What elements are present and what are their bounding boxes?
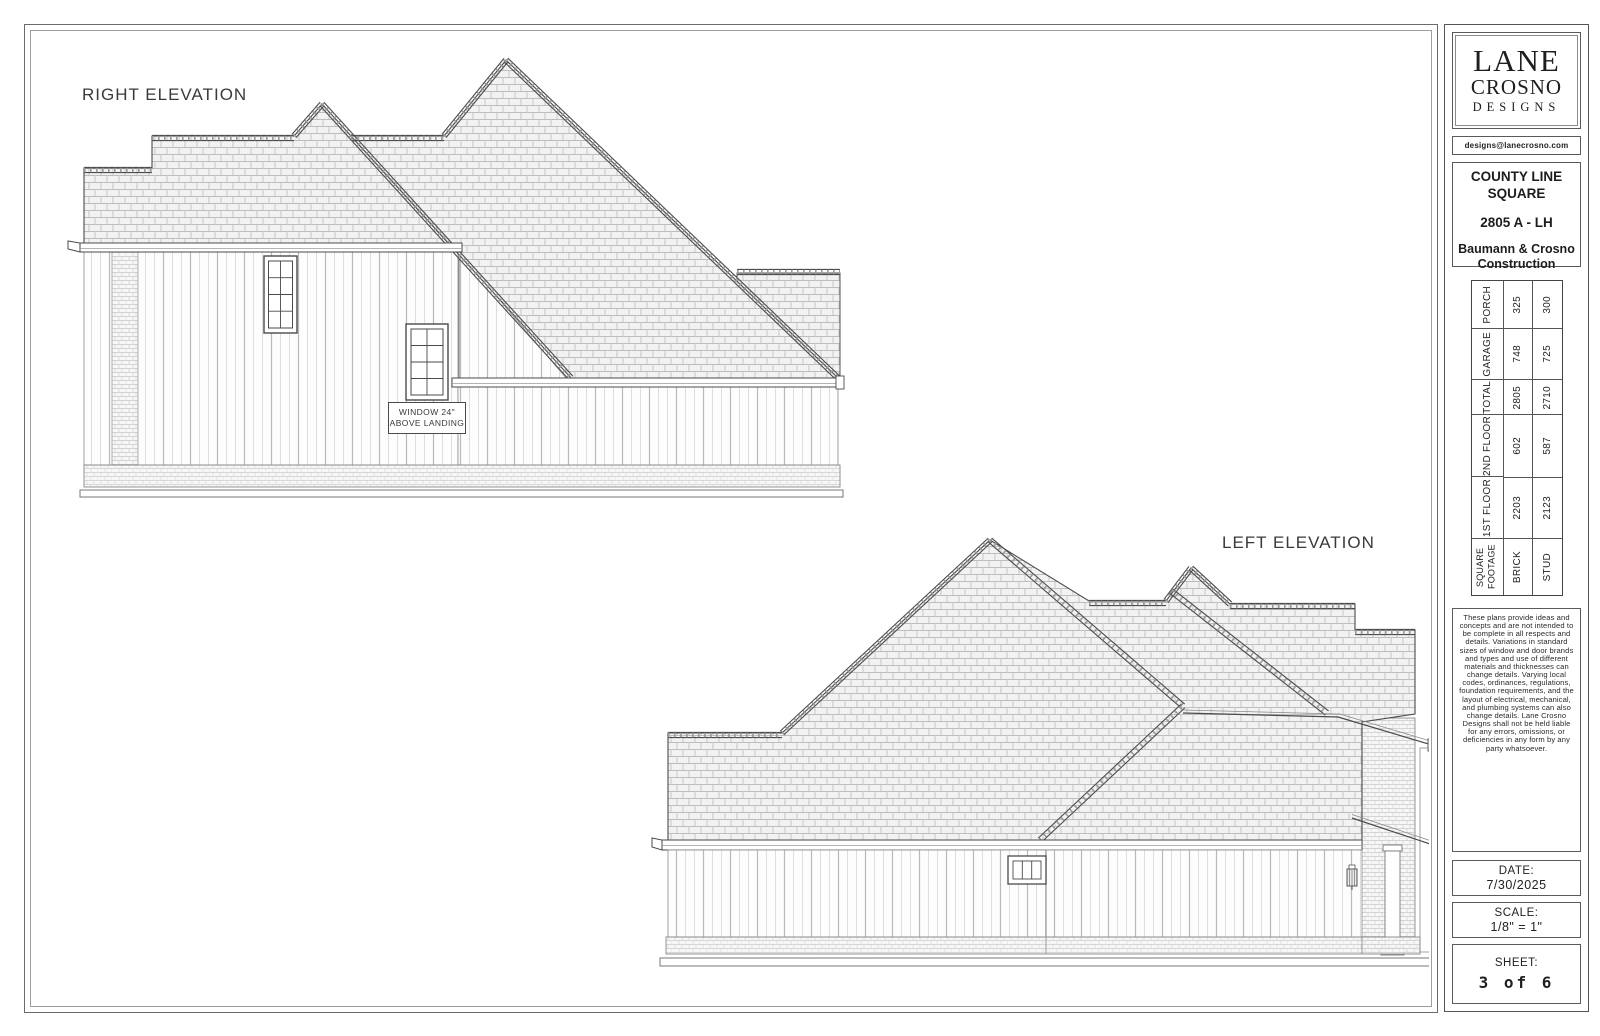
date-value: 7/30/2025 xyxy=(1486,878,1546,892)
left-elevation xyxy=(652,538,1429,966)
table-cell: 2805 xyxy=(1512,386,1523,409)
table-column-brick: 325 748 2805 602 2203 BRICK xyxy=(1504,281,1533,595)
logo-line3: DESIGNS xyxy=(1473,100,1561,115)
row-label: PORCH xyxy=(1482,286,1493,324)
project-name: COUNTY LINE SQUARE xyxy=(1453,169,1580,203)
table-cell: 2203 xyxy=(1512,496,1523,519)
table-cell: 725 xyxy=(1542,345,1553,363)
wall-lantern xyxy=(1347,865,1357,890)
foundation-band xyxy=(666,937,1420,954)
table-cell: 587 xyxy=(1542,437,1553,455)
lane-crosno-logo: LANE CROSNO DESIGNS xyxy=(1455,35,1578,126)
window-small xyxy=(1008,856,1046,884)
column-header-brick: BRICK xyxy=(1512,551,1523,583)
table-column-stud: 300 725 2710 587 2123 STUD xyxy=(1533,281,1562,595)
square-footage-table: PORCH GARAGE TOTAL 2ND FLOOR 1ST FLOOR S… xyxy=(1471,280,1563,596)
row-label: 1ST FLOOR xyxy=(1482,479,1493,537)
scale-value: 1/8" = 1" xyxy=(1491,920,1543,934)
table-header: SQUARE FOOTAGE xyxy=(1475,539,1498,595)
window-above-landing xyxy=(406,324,448,400)
row-label: GARAGE xyxy=(1482,332,1493,377)
window-upper-left xyxy=(264,256,297,333)
table-column-labels: PORCH GARAGE TOTAL 2ND FLOOR 1ST FLOOR S… xyxy=(1472,281,1504,595)
brick-pilaster xyxy=(112,252,138,465)
title-block-sidebar: LANE CROSNO DESIGNS designs@lanecrosno.c… xyxy=(1444,24,1589,1012)
row-label: TOTAL xyxy=(1482,381,1493,414)
table-cell: 748 xyxy=(1512,345,1523,363)
right-elevation-title: RIGHT ELEVATION xyxy=(82,85,247,105)
table-cell: 300 xyxy=(1542,296,1553,314)
window-note-line2: ABOVE LANDING xyxy=(390,418,465,429)
designer-email: designs@lanecrosno.com xyxy=(1452,136,1581,155)
window-note-label: WINDOW 24" ABOVE LANDING xyxy=(388,402,466,434)
roof-left-elevation xyxy=(668,540,1415,845)
logo-box: LANE CROSNO DESIGNS xyxy=(1452,32,1581,129)
date-box: DATE: 7/30/2025 xyxy=(1452,860,1581,896)
foundation-band xyxy=(84,465,840,487)
left-elevation-title: LEFT ELEVATION xyxy=(1222,533,1375,553)
project-info-box: COUNTY LINE SQUARE 2805 A - LH Baumann &… xyxy=(1452,162,1581,267)
builder-name: Baumann & Crosno Construction xyxy=(1453,242,1580,272)
row-label: 2ND FLOOR xyxy=(1482,416,1493,476)
scale-box: SCALE: 1/8" = 1" xyxy=(1452,902,1581,938)
square-footage-table-wrap: PORCH GARAGE TOTAL 2ND FLOOR 1ST FLOOR S… xyxy=(1452,280,1581,596)
scale-label: SCALE: xyxy=(1495,907,1539,919)
table-cell: 325 xyxy=(1512,296,1523,314)
disclaimer-text: These plans provide ideas and concepts a… xyxy=(1452,608,1581,852)
column-header-stud: STUD xyxy=(1542,553,1553,581)
plan-sheet: RIGHT ELEVATION LEFT ELEVATION WINDOW 24… xyxy=(0,0,1600,1036)
logo-line1: LANE xyxy=(1473,46,1560,75)
sheet-box: SHEET: 3 of 6 xyxy=(1452,944,1581,1004)
table-cell: 2710 xyxy=(1542,386,1553,409)
logo-line2: CROSNO xyxy=(1471,76,1562,98)
plan-number: 2805 A - LH xyxy=(1453,215,1580,230)
sheet-number: 3 of 6 xyxy=(1479,973,1555,992)
sheet-label: SHEET: xyxy=(1495,957,1538,969)
table-cell: 2123 xyxy=(1542,496,1553,519)
window-note-line1: WINDOW 24" xyxy=(399,407,455,418)
table-cell: 602 xyxy=(1512,437,1523,455)
elevations-drawing xyxy=(31,31,1429,1004)
date-label: DATE: xyxy=(1499,865,1535,877)
